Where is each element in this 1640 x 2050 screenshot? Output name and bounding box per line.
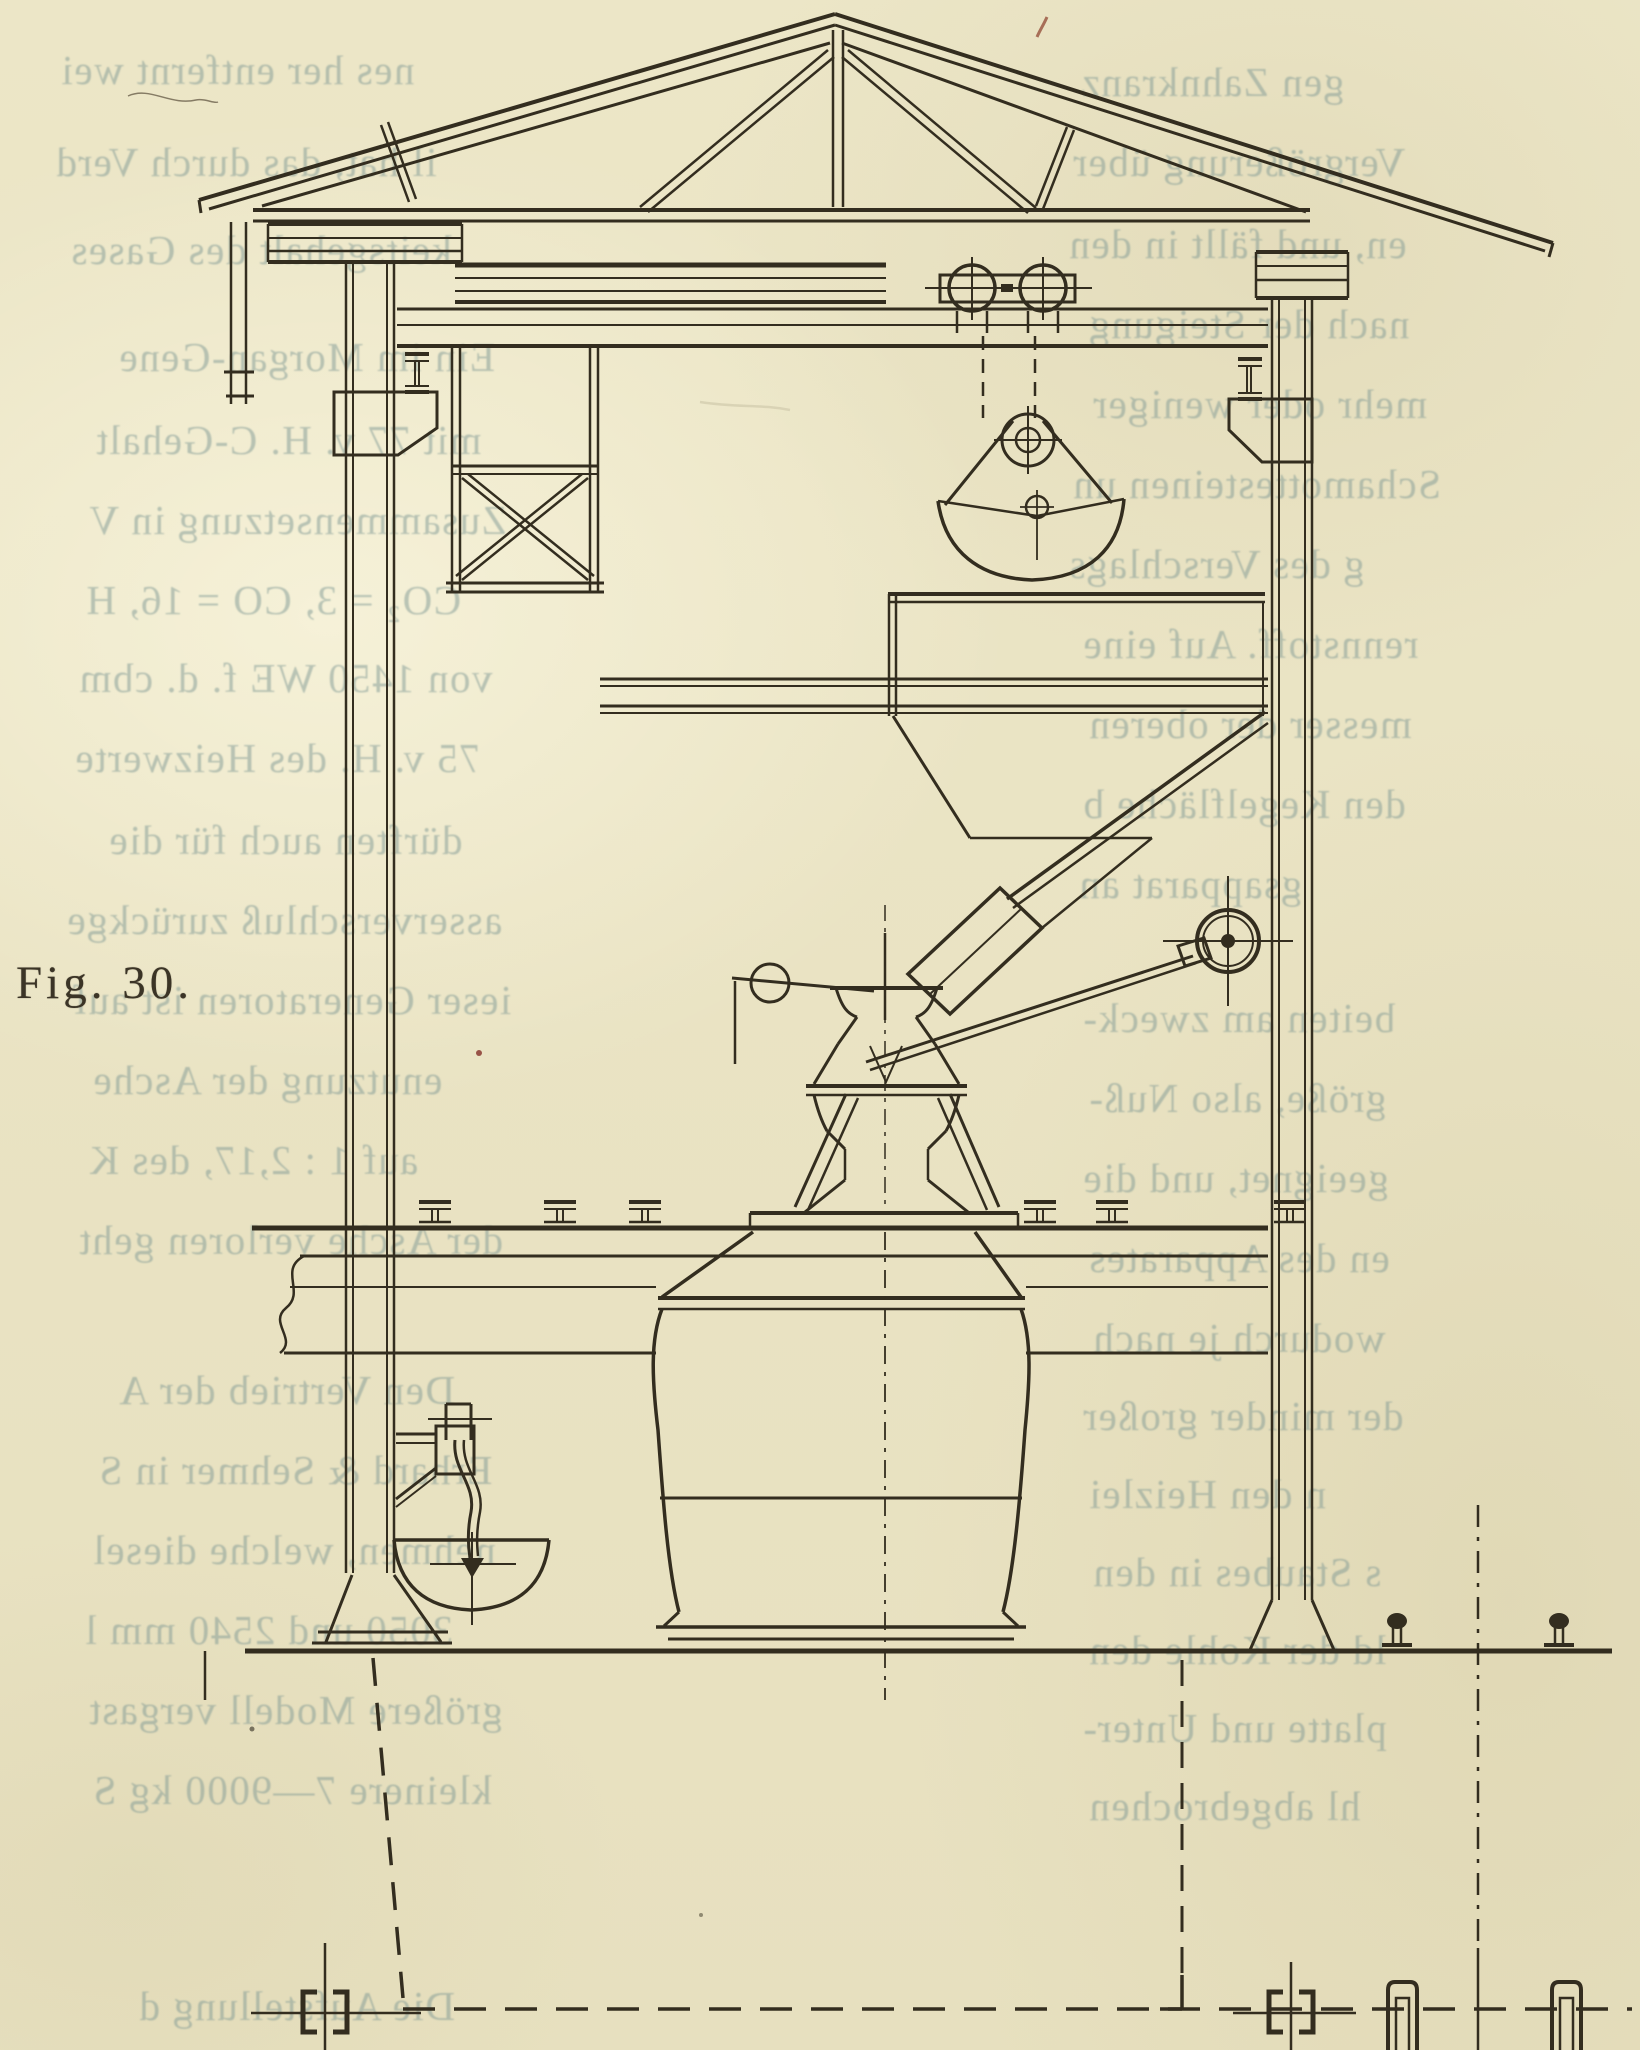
left-corbel <box>334 392 437 455</box>
left-eave-hook <box>199 200 201 213</box>
left-wall-column <box>268 224 462 1643</box>
pipe-head <box>446 1404 471 1440</box>
figure-30-drawing <box>0 0 1640 2050</box>
gas-downpipe-assembly <box>394 1404 549 1625</box>
valve-symbol-right <box>1233 1962 1356 2050</box>
king-post <box>833 30 843 207</box>
roof-truss <box>199 14 1553 257</box>
charging-bell <box>805 905 968 1212</box>
ground-and-underground <box>205 1505 1632 2050</box>
crane-trolley <box>925 257 1092 418</box>
right-corbel <box>1229 399 1312 462</box>
left-wall-cap <box>268 224 462 262</box>
platform-deck <box>455 265 886 302</box>
charging-floor <box>252 1202 1306 1353</box>
right-wall-cap <box>1256 252 1348 298</box>
hoist-ropes <box>983 336 1035 418</box>
underground-dashed-outline <box>373 1658 1632 2009</box>
handwheel <box>1163 876 1293 1006</box>
valve-symbol-left <box>251 1943 421 2050</box>
control-rod <box>866 938 1211 1070</box>
hopper-support-beams <box>600 679 1268 713</box>
scanned-page: nes her entfernt weiil hat, das durch Ve… <box>0 0 1640 2050</box>
support-legs <box>795 1094 999 1210</box>
crane-runway-girder <box>397 309 1268 346</box>
grab-bucket <box>938 406 1124 580</box>
pipe-stub-right <box>1552 1982 1581 2050</box>
charging-chute <box>908 888 1042 1014</box>
dust-speck <box>250 1727 255 1732</box>
hanging-brace-frame <box>446 346 604 592</box>
left-crane-rail <box>405 354 429 392</box>
base-plate <box>750 1213 1018 1227</box>
break-symbol <box>280 1256 304 1353</box>
charging-apparatus <box>732 876 1293 1227</box>
generator-shaft <box>653 1232 1029 1700</box>
coal-hopper <box>600 594 1268 1014</box>
eave-downpipe <box>224 222 254 404</box>
right-eave-hook <box>1549 243 1553 257</box>
dust-speck <box>699 1913 703 1917</box>
ceiling-tie-beam <box>253 210 1310 221</box>
right-crane-rail <box>1238 359 1262 399</box>
red-scratch <box>1037 17 1047 37</box>
paper-crease <box>700 402 790 410</box>
right-wall-column <box>1229 252 1348 1650</box>
pipe-stub-left <box>1388 1982 1417 2050</box>
pencil-scratch <box>128 93 218 102</box>
red-speck <box>476 1050 482 1056</box>
left-foundation <box>312 1575 452 1643</box>
right-foundation <box>1250 1600 1334 1650</box>
crane-runway <box>397 265 1268 592</box>
